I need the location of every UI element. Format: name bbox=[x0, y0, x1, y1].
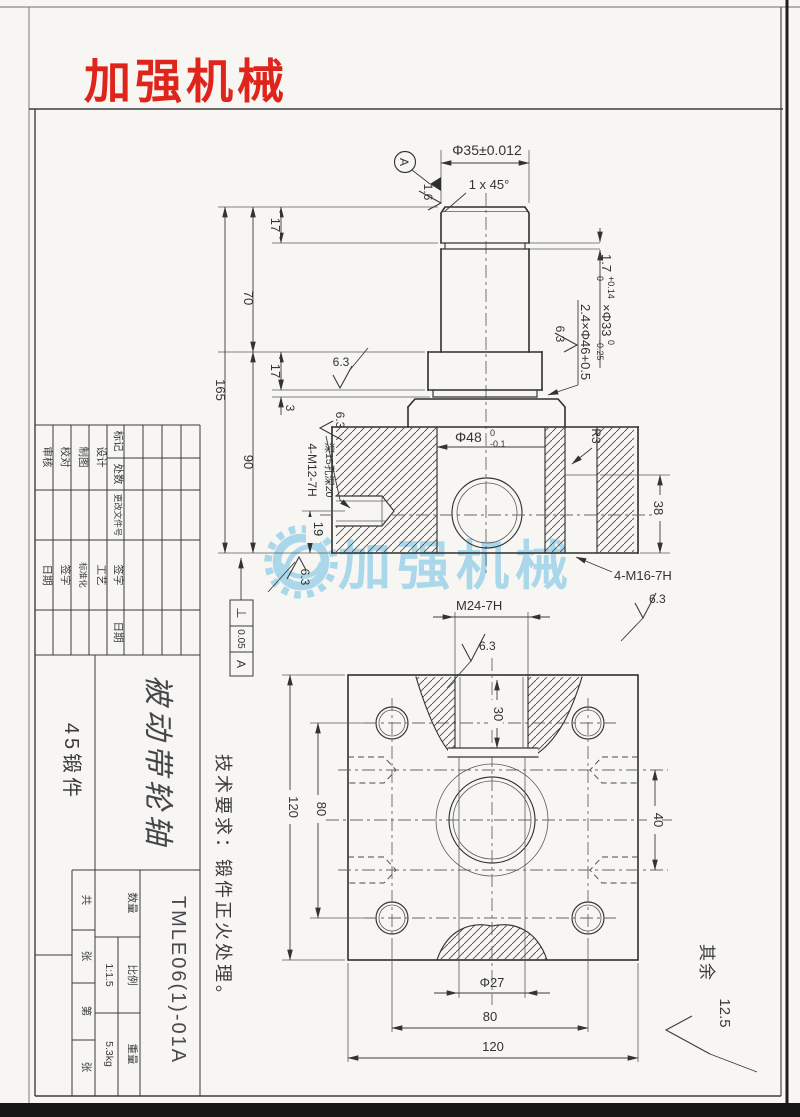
gdt-datum: A bbox=[234, 660, 248, 668]
tb-scale-label: 比例 bbox=[126, 965, 139, 986]
hatch-right bbox=[597, 427, 634, 553]
tb-role-2: 制图 bbox=[77, 447, 90, 468]
flange-dimensions: 120 80 40 Φ27 80 120 bbox=[282, 675, 666, 1062]
rest-label: 其余 bbox=[697, 944, 716, 982]
chamfer-note: 1 x 45° bbox=[469, 177, 510, 192]
dim-d27: Φ27 bbox=[480, 975, 505, 990]
tb-role-0: 审核 bbox=[41, 447, 54, 468]
dim-d48: Φ48 bbox=[455, 429, 482, 445]
g1-sup: +0.14 bbox=[606, 276, 616, 299]
tech-requirements: 技术要求：锻件正火处理。 bbox=[213, 754, 233, 1006]
tb-material: 45锻件 bbox=[60, 723, 83, 801]
tb-rev-1: 处数 bbox=[112, 464, 125, 485]
dim-120-bottom: 120 bbox=[482, 1039, 504, 1054]
datum-a-label: A bbox=[397, 158, 411, 166]
tb-proc-1: 签字 bbox=[59, 565, 72, 586]
tb-sheet-2: 第 bbox=[80, 1006, 93, 1017]
tb-sheet-3: 张 bbox=[80, 1062, 92, 1073]
roughness-6-3-m16-value: 6.3 bbox=[649, 592, 666, 606]
hatch-left bbox=[336, 427, 437, 553]
tb-sheet-1: 张 bbox=[80, 951, 92, 962]
m16-callout: 4-M16-7H bbox=[614, 568, 672, 583]
general-roughness: 其余 12.5 bbox=[666, 944, 757, 1072]
groove-callout-1: 1.7 +0.14 0 ×Φ33 0 -0.25 bbox=[595, 254, 616, 361]
tb-proc-3: 工艺 bbox=[95, 565, 107, 586]
dim-d48-sub: -0.1 bbox=[490, 439, 506, 449]
drawing-sheet: 加强机械 加强机械 bbox=[0, 0, 800, 1117]
top-dimension: Φ35±0.012 1 x 45° A 1.6 bbox=[395, 142, 530, 212]
title-block: 标记 处数 更改文件号 签字 日期 审核 校对 制图 设计 日期 签字 标准化 … bbox=[35, 425, 200, 1096]
tb-proc-2: 标准化 bbox=[78, 562, 88, 588]
tb-part-name: 被动带轮轴 bbox=[141, 675, 174, 850]
g1-main: 1.7 bbox=[599, 254, 614, 272]
dim-40: 40 bbox=[651, 813, 666, 827]
dim-d35: Φ35±0.012 bbox=[452, 142, 522, 158]
g1-sub2: -0.25 bbox=[595, 340, 605, 361]
roughness-12-5-icon bbox=[666, 1016, 710, 1054]
dim-70: 70 bbox=[241, 291, 256, 305]
tb-rev-4: 日期 bbox=[112, 622, 124, 643]
roughness-1-6-value: 1.6 bbox=[421, 184, 435, 201]
hatch-mid-right bbox=[545, 427, 565, 553]
tb-role-3: 设计 bbox=[95, 447, 108, 468]
dim-19: 19 bbox=[311, 522, 326, 536]
tb-weight-label: 重量 bbox=[126, 1044, 139, 1066]
dim-120-left: 120 bbox=[286, 796, 301, 818]
tb-sheet-0: 共 bbox=[80, 895, 92, 906]
dim-80-left: 80 bbox=[314, 802, 329, 816]
dim-30: 30 bbox=[491, 707, 506, 721]
roughness-6-3-bottom-value: 6.3 bbox=[298, 569, 312, 586]
rest-value: 12.5 bbox=[716, 998, 733, 1027]
dim-165: 165 bbox=[213, 379, 228, 401]
tb-rev-0: 标记 bbox=[112, 431, 124, 452]
tb-role-1: 校对 bbox=[59, 447, 72, 468]
dim-d48-sup: 0 bbox=[490, 428, 495, 438]
tb-drawing-no: TMLE06(1)-01A bbox=[167, 896, 189, 1064]
tb-qty-label: 数量 bbox=[126, 893, 139, 914]
tb-rev-2: 更改文件号 bbox=[113, 494, 123, 537]
bottom-section bbox=[437, 925, 547, 960]
gdt-symbol: ⊥ bbox=[234, 607, 249, 618]
dim-80-bottom: 80 bbox=[483, 1009, 497, 1024]
roughness-6-3-g2-value: 6.3 bbox=[553, 326, 567, 343]
dim-17-top: 17 bbox=[268, 218, 283, 232]
drawing-canvas: 加强机械 加强机械 bbox=[0, 0, 800, 1117]
gdt-value: 0.05 bbox=[235, 629, 246, 649]
m12-line2: 深15孔深20 bbox=[323, 443, 336, 498]
roughness-6-3-m12-value: 6.3 bbox=[333, 412, 347, 429]
tb-weight-value: 5.3kg bbox=[103, 1041, 115, 1067]
dim-38: 38 bbox=[651, 501, 666, 515]
g1-sub: 0 bbox=[595, 276, 605, 281]
m24-label: M24-7H bbox=[456, 598, 502, 613]
corner-holes bbox=[364, 698, 616, 948]
g1-tail: ×Φ33 bbox=[599, 304, 614, 336]
roughness-6-3-step-value: 6.3 bbox=[333, 355, 350, 369]
roughness-6-3-step-icon bbox=[333, 366, 352, 388]
gdt-frame: ⊥ 0.05 A bbox=[230, 558, 253, 676]
shaft-section-view bbox=[320, 193, 652, 575]
tb-scale-value: 1:1.5 bbox=[103, 963, 115, 987]
dim-3: 3 bbox=[283, 405, 297, 412]
dim-r3: R3 bbox=[589, 428, 603, 444]
m12-line1: 4-M12-7H bbox=[305, 443, 319, 496]
brand-logo-text: 加强机械 bbox=[84, 55, 288, 108]
tb-proc-0: 日期 bbox=[41, 565, 53, 586]
roughness-6-3-m24-value: 6.3 bbox=[479, 639, 496, 653]
flange-plan-view: 30 bbox=[326, 658, 672, 1005]
g1-sup2: 0 bbox=[606, 340, 616, 345]
dim-90: 90 bbox=[241, 455, 256, 469]
groove-callout-2: 2.4×Φ46+0.5 bbox=[578, 304, 593, 380]
tb-rev-3: 签字 bbox=[112, 565, 125, 586]
